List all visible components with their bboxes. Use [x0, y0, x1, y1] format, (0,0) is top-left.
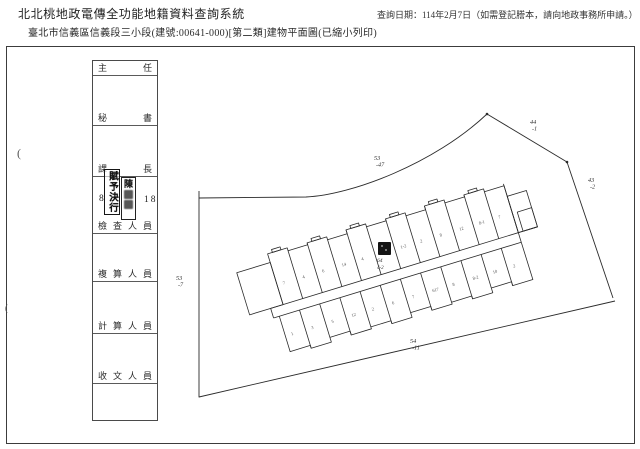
- building-line: [501, 248, 512, 285]
- building-line: [406, 216, 420, 263]
- highlight-label-top: 64: [377, 257, 383, 264]
- unit-number-mark: 7: [411, 294, 415, 300]
- unit-number-mark: 2: [419, 238, 423, 243]
- document-title: 臺北市信義區信義段三小段(建號:00641-000)[第二類]建物平面圖(已縮小…: [28, 24, 377, 39]
- building-line: [441, 267, 452, 302]
- unit-number-mark: 4: [361, 256, 365, 262]
- unit-number-mark: 8: [439, 232, 443, 238]
- unit-number-mark: 10: [492, 268, 498, 274]
- building-line: [400, 279, 410, 312]
- building-line: [350, 223, 359, 229]
- unit-number-mark: 7: [282, 280, 286, 286]
- building-line: [360, 292, 371, 327]
- building-line: [340, 298, 351, 335]
- building-line: [320, 304, 330, 337]
- unit-number-mark: 8: [452, 281, 456, 287]
- system-title: 北北桃地政電傳全功能地籍資料查詢系統: [18, 5, 245, 22]
- building-line: [464, 195, 479, 245]
- building-line: [288, 251, 303, 299]
- building-line: [346, 230, 361, 281]
- building-line: [380, 285, 392, 323]
- unit-number-mark: 8-1: [478, 219, 485, 226]
- unit-number-mark: 1-2: [400, 243, 407, 250]
- unit-number-mark: 6: [321, 268, 325, 274]
- unit-number-mark: 5: [331, 318, 335, 324]
- boundary-node: [486, 113, 489, 116]
- highlight-stamp-detail: [381, 245, 383, 247]
- building-line: [328, 240, 342, 287]
- building-line: [517, 208, 537, 232]
- boundary-node: [566, 161, 569, 164]
- highlight-label-bottom: 4-2: [377, 266, 384, 271]
- building-outline: 74614431-228128-171351226761788-2102: [233, 173, 552, 362]
- building-line: [307, 243, 322, 293]
- floor-plan-svg: 53-4744-143-253-754-1174614431-228128-17…: [6, 46, 633, 442]
- building-line: [271, 227, 538, 309]
- building-line: [461, 261, 473, 299]
- unit-number-mark: 8-2: [472, 274, 479, 281]
- scan-artifact: (: [5, 303, 8, 313]
- page: { "header": { "system_title": "北北桃地政電傳全功…: [0, 0, 640, 449]
- lot-53-7: 53-7: [176, 275, 184, 289]
- lot-54-11: 54-11: [410, 338, 420, 352]
- lot-44-1: 44-1: [530, 119, 537, 133]
- unit-number-mark: 2: [371, 306, 375, 311]
- building-line: [311, 236, 320, 242]
- unit-number-mark: 1: [290, 331, 294, 336]
- unit-number-mark: 12: [351, 312, 357, 318]
- highlight-stamp: [378, 242, 391, 255]
- building-line: [445, 203, 460, 251]
- building-line: [271, 308, 274, 318]
- building-line: [428, 199, 437, 205]
- lot-53-47: 53-47: [374, 155, 385, 169]
- unit-number-mark: 4: [302, 274, 306, 280]
- building-line: [424, 206, 439, 257]
- building-line: [481, 255, 491, 288]
- unit-number-mark: 6: [391, 300, 395, 306]
- scan-artifact: (: [17, 146, 21, 161]
- query-date: 查詢日期：114年2月7日（如需登記謄本，請向地政事務所申請。）: [377, 8, 638, 21]
- unit-number-mark: 3: [310, 325, 314, 331]
- parcel-boundary-line: [199, 191, 615, 397]
- unit-number-mark: 7: [498, 214, 502, 220]
- highlight-stamp-detail: [385, 249, 387, 251]
- unit-number-mark: 617: [432, 286, 441, 293]
- unit-number-mark: 12: [459, 226, 465, 232]
- unit-number-mark: 14: [341, 261, 347, 267]
- parcel-boundary-line: [199, 114, 613, 298]
- building-line: [421, 273, 432, 310]
- unit-number-mark: 2: [512, 263, 516, 268]
- lot-43-2: 43-2: [588, 177, 595, 191]
- building-line: [299, 310, 311, 348]
- building-line: [389, 212, 398, 218]
- building-line: [271, 247, 280, 253]
- building-line: [484, 192, 498, 239]
- building-line: [468, 188, 477, 194]
